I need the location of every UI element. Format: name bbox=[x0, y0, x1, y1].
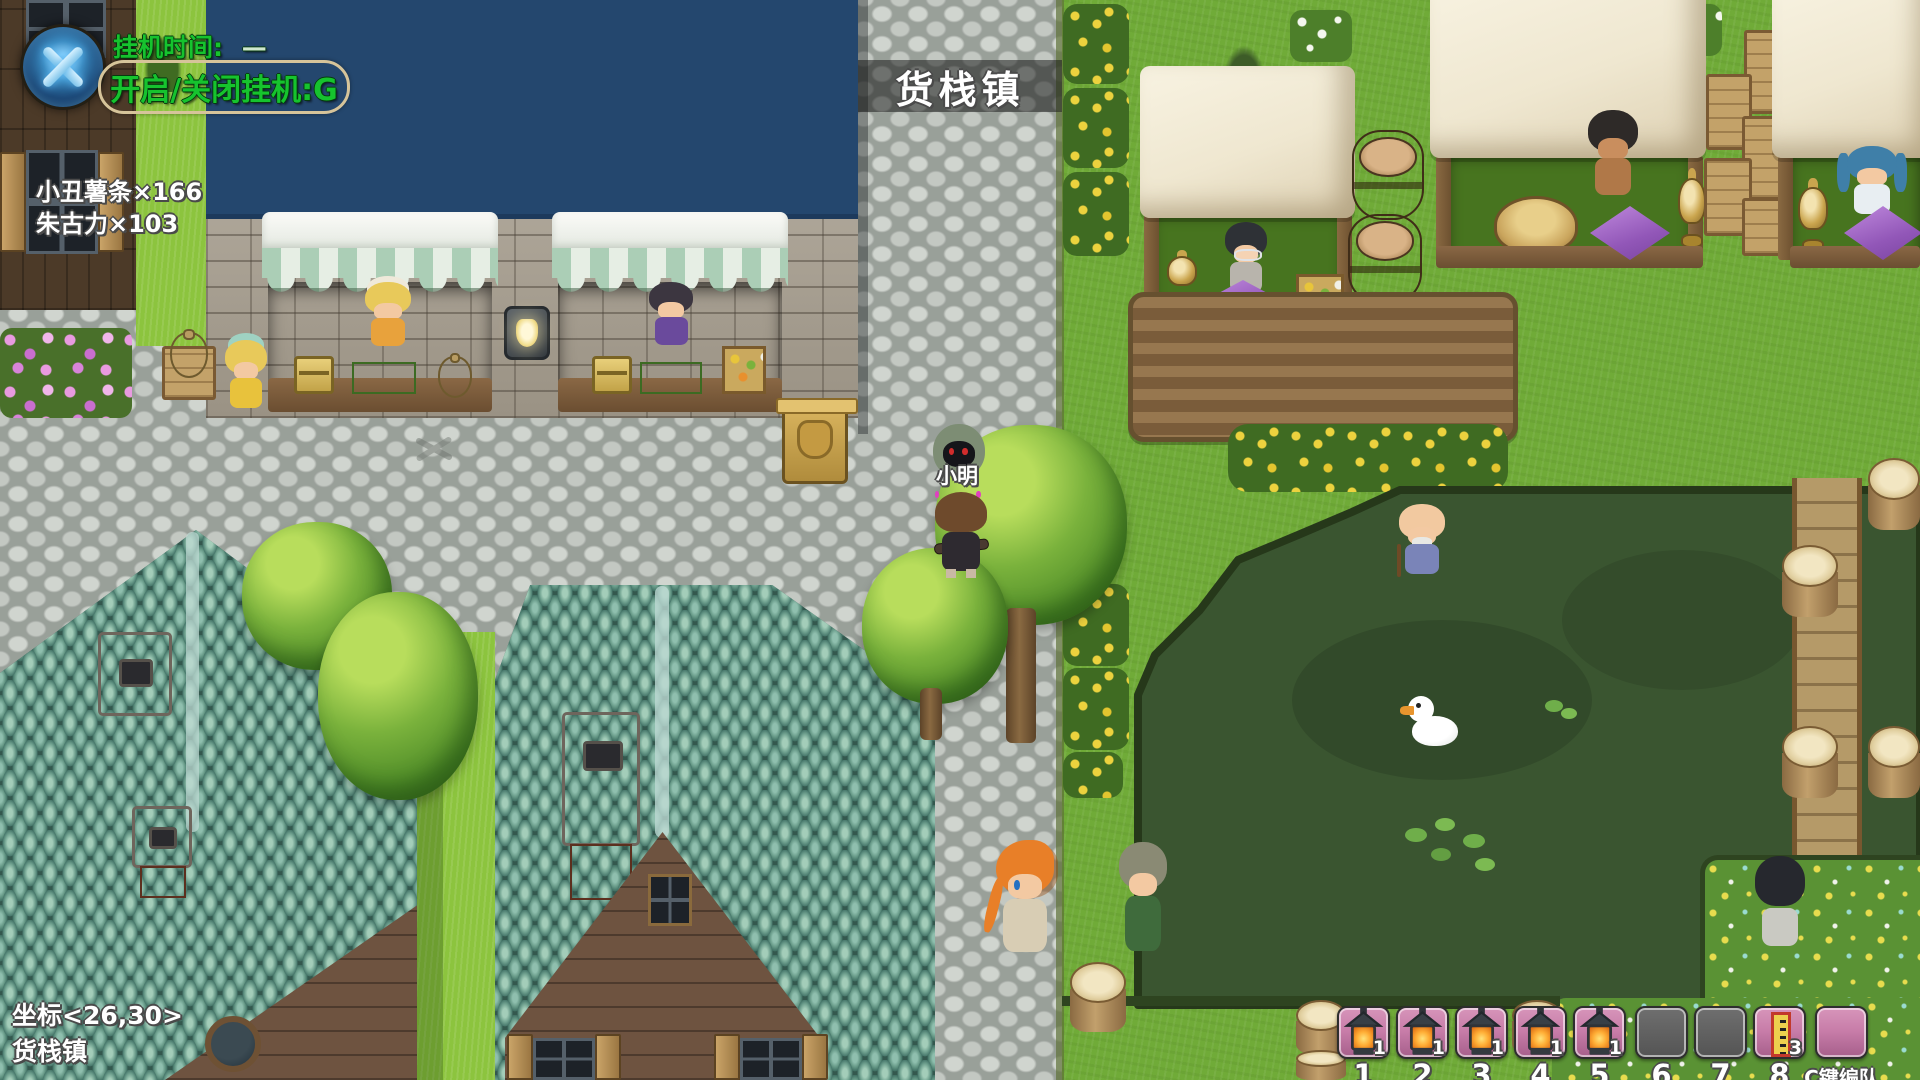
town-banner: 货栈镇 bbox=[858, 60, 1062, 112]
house-b-ridge bbox=[655, 586, 669, 838]
big-tree-trunk bbox=[1006, 608, 1036, 743]
curb bbox=[206, 412, 858, 434]
slot-count: 1 bbox=[1491, 1037, 1504, 1059]
hotbar-slot-7[interactable]: 7 bbox=[1694, 1006, 1747, 1059]
afk-time-value: — bbox=[242, 33, 267, 62]
slot-count: 1 bbox=[1609, 1037, 1622, 1059]
npc-nameplate: 小明 bbox=[936, 460, 978, 490]
hotbar-slot-8[interactable]: 3 8 bbox=[1753, 1006, 1806, 1059]
left-shutter bbox=[0, 152, 26, 252]
lily-pad-pair bbox=[1545, 700, 1579, 720]
shop2-awning-top bbox=[552, 212, 788, 250]
player-character[interactable] bbox=[932, 492, 990, 580]
slot-key: 5 bbox=[1573, 1058, 1626, 1080]
house-b-shutter-r1 bbox=[595, 1034, 621, 1080]
house-a-chimney bbox=[132, 806, 192, 868]
slot-count: 3 bbox=[1789, 1037, 1802, 1059]
slot-key: 2 bbox=[1396, 1058, 1449, 1080]
log-post bbox=[1782, 726, 1838, 798]
market-npc[interactable] bbox=[222, 340, 270, 414]
house-b-shutter-l2 bbox=[714, 1034, 740, 1080]
boot-left bbox=[946, 569, 956, 578]
gold-chest bbox=[294, 356, 334, 394]
slot-key: 7 bbox=[1694, 1058, 1747, 1080]
goods-crate bbox=[722, 346, 766, 394]
town-banner-text: 货栈镇 bbox=[895, 59, 1024, 114]
shopkeeper-baker-npc[interactable] bbox=[362, 282, 414, 352]
afk-emblem-icon[interactable] bbox=[20, 24, 106, 110]
cane bbox=[1397, 544, 1401, 577]
afk-toggle-label: 开启/关闭挂机:G bbox=[110, 65, 338, 109]
hotbar-slot-1[interactable]: 1 1 bbox=[1337, 1006, 1390, 1059]
eye bbox=[1014, 880, 1019, 890]
house-a-chimney-brick bbox=[140, 866, 186, 898]
hotbar-slot-2[interactable]: 1 2 bbox=[1396, 1006, 1449, 1059]
green-adventurer-npc[interactable] bbox=[1116, 842, 1170, 960]
map-name-readout: 货栈镇 bbox=[12, 1032, 87, 1068]
green-counter-cloth-2 bbox=[640, 362, 702, 394]
house-b-chimney bbox=[562, 712, 640, 846]
shopkeeper-grocer-npc[interactable] bbox=[646, 282, 696, 350]
hotbar-slot-3[interactable]: 1 3 bbox=[1455, 1006, 1508, 1059]
house-b-shutter-r2 bbox=[802, 1034, 828, 1080]
pavement-crack bbox=[410, 430, 458, 470]
slot-count: 1 bbox=[1432, 1037, 1445, 1059]
red-eye-left bbox=[949, 448, 954, 455]
house-b-window-1 bbox=[533, 1038, 595, 1080]
log-stump bbox=[1070, 962, 1126, 1032]
lily-pads bbox=[1405, 818, 1505, 876]
orange-hair-adventurer[interactable] bbox=[992, 840, 1058, 962]
log-post bbox=[1782, 545, 1838, 617]
shop-sign-stand[interactable] bbox=[782, 404, 848, 484]
slot-count: 1 bbox=[1373, 1037, 1386, 1059]
house-b-shutter-l1 bbox=[507, 1034, 533, 1080]
house-a-vent bbox=[98, 632, 172, 716]
town-tree-canopy-2 bbox=[318, 592, 478, 800]
house-b-window-2 bbox=[740, 1038, 802, 1080]
hotbar-slot-party[interactable]: C键编队 bbox=[1815, 1006, 1868, 1059]
wooden-pier bbox=[1792, 478, 1862, 868]
sign-stand-top bbox=[776, 398, 858, 414]
house-a-round-window bbox=[205, 1016, 261, 1072]
slot-key: 8 bbox=[1753, 1058, 1806, 1080]
shop1-awning-top bbox=[262, 212, 498, 250]
hotbar: 1 1 1 2 1 3 1 4 1 5 6 bbox=[1337, 1006, 1897, 1080]
slot-key: 3 bbox=[1455, 1058, 1508, 1080]
afk-time-row: 挂机时间: — bbox=[113, 28, 267, 64]
game-viewport: 挂机时间: — 开启/关闭挂机:G 小丑薯条×166 朱古力×103 货栈镇 小… bbox=[0, 0, 1920, 1080]
small-plant bbox=[432, 892, 472, 938]
old-man-npc[interactable] bbox=[1396, 504, 1448, 580]
house-b-gable-window bbox=[648, 874, 692, 926]
slot-count: 1 bbox=[1550, 1037, 1563, 1059]
afk-toggle-pill[interactable]: 开启/关闭挂机:G bbox=[98, 60, 350, 114]
house-a-ridge bbox=[186, 532, 199, 832]
coords-readout: 坐标<26,30> bbox=[12, 996, 183, 1032]
market-money-bag bbox=[170, 332, 208, 378]
small-tree-trunk bbox=[920, 688, 942, 740]
pink-flower-bed bbox=[0, 328, 132, 418]
green-counter-cloth bbox=[352, 362, 416, 394]
money-bag bbox=[438, 356, 472, 398]
duck[interactable] bbox=[1406, 694, 1462, 752]
hotbar-slot-4[interactable]: 1 4 bbox=[1514, 1006, 1567, 1059]
slot-key: 4 bbox=[1514, 1058, 1567, 1080]
hotbar-slot-5[interactable]: 1 5 bbox=[1573, 1006, 1626, 1059]
wall-lantern-icon bbox=[504, 306, 550, 360]
meadow-npc[interactable] bbox=[1752, 856, 1808, 952]
afk-time-label: 挂机时间: bbox=[113, 33, 223, 62]
slot-key: 6 bbox=[1635, 1058, 1688, 1080]
gold-chest-2 bbox=[592, 356, 632, 394]
red-eye-right bbox=[962, 448, 967, 455]
item-counter-2: 朱古力×103 bbox=[36, 204, 178, 239]
hotbar-slot-6[interactable]: 6 bbox=[1635, 1006, 1688, 1059]
item-counter-1: 小丑薯条×166 bbox=[36, 172, 202, 207]
log-post bbox=[1868, 458, 1920, 530]
party-hint: C键编队 bbox=[1804, 1062, 1879, 1080]
slot-key: 1 bbox=[1337, 1058, 1390, 1080]
log-post bbox=[1868, 726, 1920, 798]
boot-right bbox=[966, 569, 976, 578]
